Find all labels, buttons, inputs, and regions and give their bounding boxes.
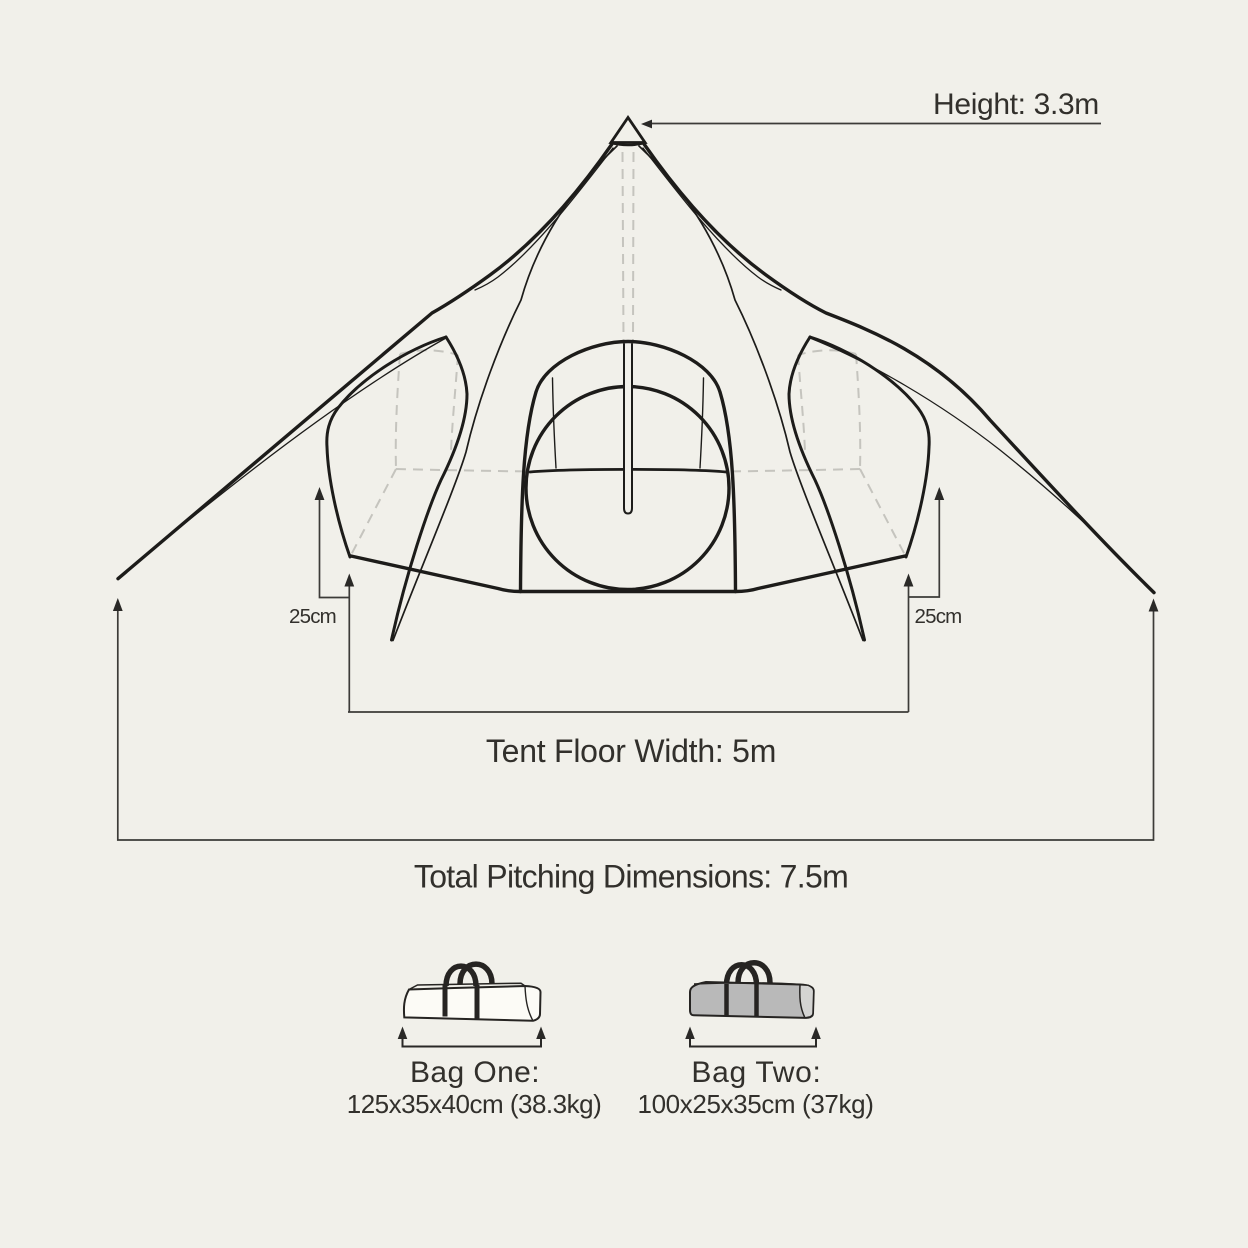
svg-text:Height: 3.3m: Height: 3.3m bbox=[933, 88, 1099, 121]
svg-text:125x35x40cm (38.3kg): 125x35x40cm (38.3kg) bbox=[347, 1089, 601, 1119]
svg-text:Bag Two:: Bag Two: bbox=[691, 1056, 821, 1089]
svg-text:Total Pitching Dimensions: 7.5: Total Pitching Dimensions: 7.5m bbox=[414, 859, 848, 895]
svg-text:Bag One:: Bag One: bbox=[410, 1056, 540, 1089]
svg-text:Tent Floor Width: 5m: Tent Floor Width: 5m bbox=[486, 733, 776, 769]
svg-text:25cm: 25cm bbox=[915, 605, 962, 628]
svg-text:25cm: 25cm bbox=[289, 605, 336, 628]
svg-text:100x25x35cm (37kg): 100x25x35cm (37kg) bbox=[638, 1089, 874, 1119]
